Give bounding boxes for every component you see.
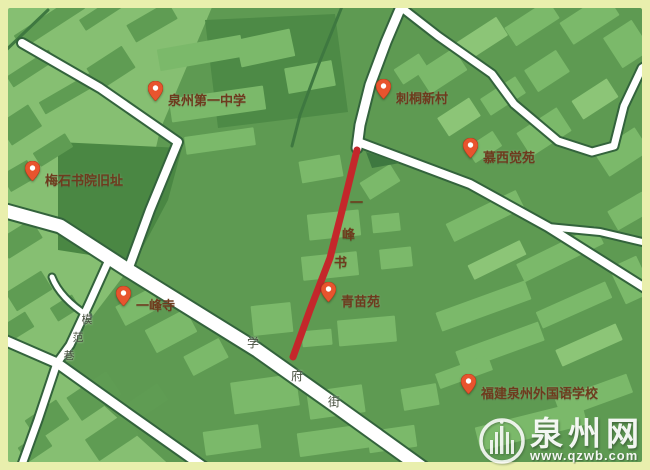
building: [251, 302, 294, 336]
map-canvas[interactable]: 泉州第一中学 刺桐新村 慕西觉苑 梅石书院旧址 一峰寺 青苗苑: [0, 0, 650, 470]
map-graphics: [0, 0, 650, 470]
building: [371, 213, 401, 234]
building: [337, 316, 397, 347]
building: [301, 329, 332, 348]
building: [379, 246, 413, 269]
